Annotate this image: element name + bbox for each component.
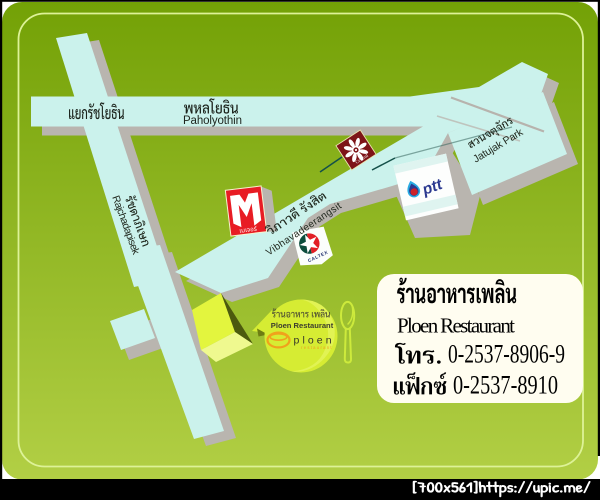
- svg-text:0-2537-8910: 0-2537-8910: [453, 371, 558, 400]
- svg-text:Paholyothin: Paholyothin: [183, 115, 242, 127]
- svg-text:0-2537-8906-9: 0-2537-8906-9: [448, 340, 565, 369]
- svg-text:Ploen Restaurant: Ploen Restaurant: [271, 321, 334, 330]
- svg-text:restaurant: restaurant: [301, 345, 333, 350]
- svg-text:Ploen Restaurant: Ploen Restaurant: [397, 314, 515, 338]
